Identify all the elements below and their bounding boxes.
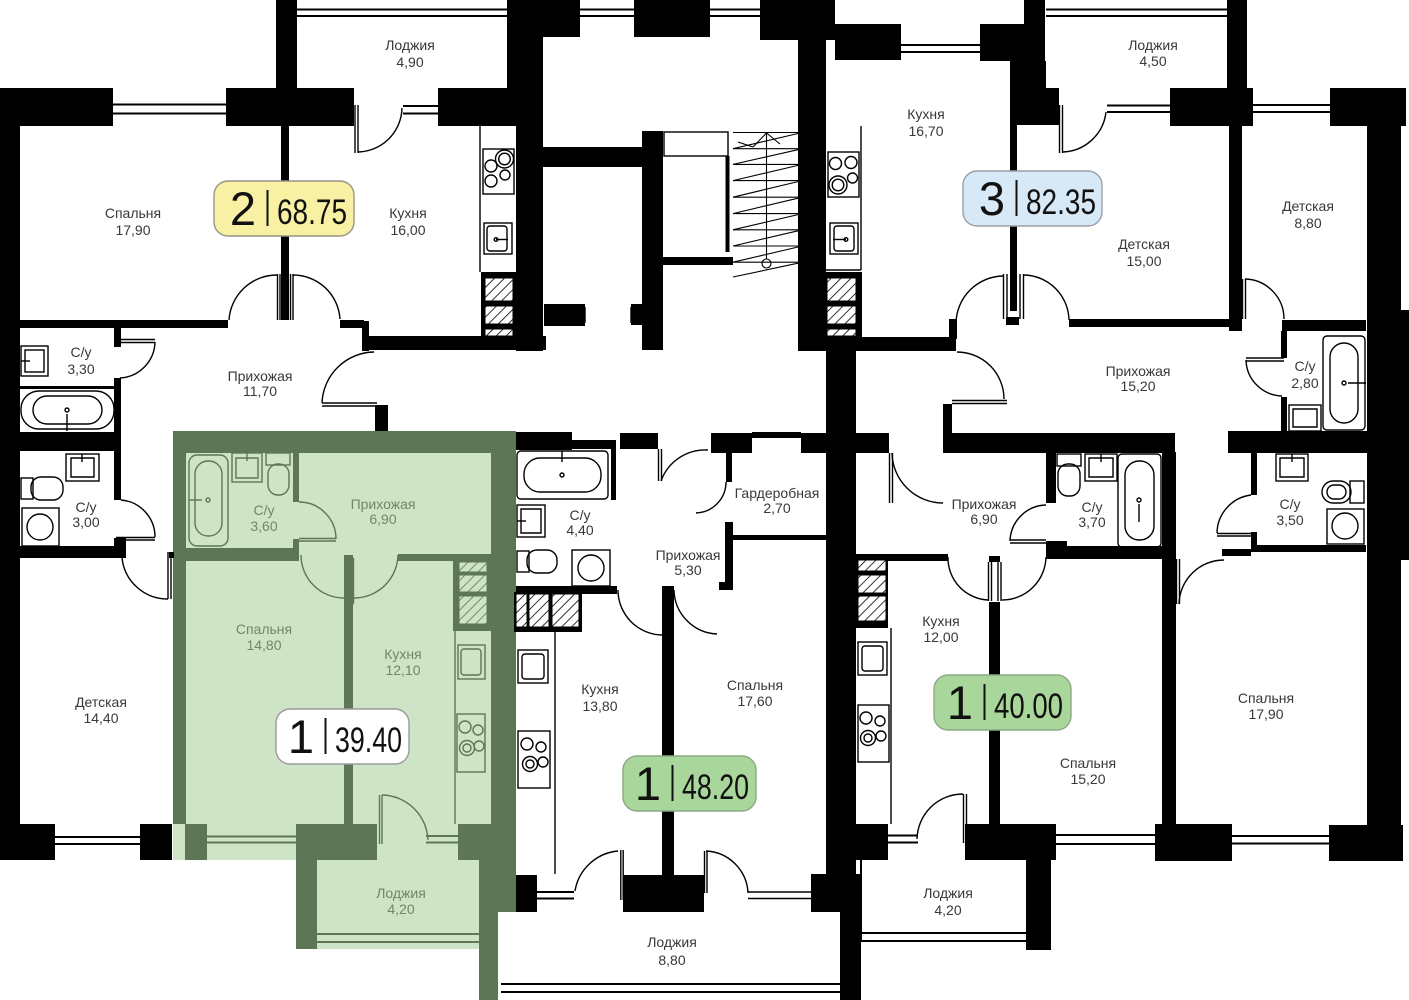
svg-text:Лоджия: Лоджия <box>923 885 973 901</box>
svg-text:3,00: 3,00 <box>72 514 99 530</box>
svg-text:8,80: 8,80 <box>1294 215 1321 231</box>
svg-text:15,00: 15,00 <box>1126 253 1161 269</box>
svg-text:С/у: С/у <box>71 344 92 360</box>
svg-text:4,20: 4,20 <box>934 902 961 918</box>
svg-text:40.00: 40.00 <box>994 687 1063 726</box>
svg-text:С/у: С/у <box>254 502 275 518</box>
svg-text:17,90: 17,90 <box>1248 706 1283 722</box>
svg-text:Детская: Детская <box>75 694 127 710</box>
svg-text:48.20: 48.20 <box>682 768 749 807</box>
svg-text:16,70: 16,70 <box>908 123 943 139</box>
svg-text:Гардеробная: Гардеробная <box>735 485 820 501</box>
svg-text:Кухня: Кухня <box>389 205 426 221</box>
svg-text:5,30: 5,30 <box>674 562 701 578</box>
svg-text:13,80: 13,80 <box>582 698 617 714</box>
svg-text:С/у: С/у <box>570 507 591 523</box>
svg-text:С/у: С/у <box>1280 496 1301 512</box>
svg-text:3: 3 <box>979 172 1005 225</box>
svg-text:12,00: 12,00 <box>923 629 958 645</box>
svg-text:15,20: 15,20 <box>1070 771 1105 787</box>
svg-text:8,80: 8,80 <box>658 952 685 968</box>
svg-text:1: 1 <box>288 710 314 763</box>
svg-text:82.35: 82.35 <box>1026 183 1096 222</box>
svg-text:4,90: 4,90 <box>396 54 423 70</box>
svg-text:14,40: 14,40 <box>83 710 118 726</box>
svg-text:15,20: 15,20 <box>1120 378 1155 394</box>
svg-text:Спальня: Спальня <box>105 205 161 221</box>
svg-text:1: 1 <box>635 757 661 810</box>
svg-text:3,60: 3,60 <box>250 518 277 534</box>
svg-text:4,50: 4,50 <box>1139 53 1166 69</box>
svg-text:Кухня: Кухня <box>581 681 618 697</box>
svg-text:1: 1 <box>947 676 973 729</box>
svg-text:Прихожая: Прихожая <box>228 368 293 384</box>
svg-text:Детская: Детская <box>1282 198 1334 214</box>
svg-text:4,20: 4,20 <box>387 901 414 917</box>
svg-text:Лоджия: Лоджия <box>385 37 435 53</box>
svg-text:Кухня: Кухня <box>922 613 959 629</box>
svg-text:Спальня: Спальня <box>1060 755 1116 771</box>
svg-text:3,70: 3,70 <box>1078 514 1105 530</box>
svg-text:2,80: 2,80 <box>1291 375 1318 391</box>
svg-text:3,30: 3,30 <box>67 361 94 377</box>
svg-text:Лоджия: Лоджия <box>376 885 426 901</box>
svg-text:Спальня: Спальня <box>727 677 783 693</box>
svg-text:Детская: Детская <box>1118 236 1170 252</box>
svg-text:Прихожая: Прихожая <box>656 547 721 563</box>
svg-text:2,70: 2,70 <box>763 500 790 516</box>
svg-text:6,90: 6,90 <box>970 511 997 527</box>
svg-text:17,90: 17,90 <box>115 222 150 238</box>
svg-text:2: 2 <box>230 182 256 235</box>
svg-text:6,90: 6,90 <box>369 511 396 527</box>
svg-text:16,00: 16,00 <box>390 222 425 238</box>
svg-text:Прихожая: Прихожая <box>952 496 1017 512</box>
svg-text:С/у: С/у <box>1082 499 1103 515</box>
svg-text:14,80: 14,80 <box>246 637 281 653</box>
svg-text:С/у: С/у <box>76 499 97 515</box>
svg-text:С/у: С/у <box>1295 358 1316 374</box>
svg-text:Лоджия: Лоджия <box>1128 37 1178 53</box>
svg-text:4,40: 4,40 <box>566 522 593 538</box>
svg-text:68.75: 68.75 <box>277 193 347 232</box>
svg-text:3,50: 3,50 <box>1276 512 1303 528</box>
svg-text:17,60: 17,60 <box>737 693 772 709</box>
svg-text:11,70: 11,70 <box>243 383 277 399</box>
svg-text:Прихожая: Прихожая <box>351 496 416 512</box>
svg-text:Кухня: Кухня <box>384 646 421 662</box>
svg-text:Прихожая: Прихожая <box>1106 363 1171 379</box>
svg-text:Лоджия: Лоджия <box>647 934 697 950</box>
svg-text:12,10: 12,10 <box>385 662 420 678</box>
svg-text:Спальня: Спальня <box>236 621 292 637</box>
svg-text:Спальня: Спальня <box>1238 690 1294 706</box>
svg-text:39.40: 39.40 <box>335 721 402 760</box>
svg-text:Кухня: Кухня <box>907 106 944 122</box>
